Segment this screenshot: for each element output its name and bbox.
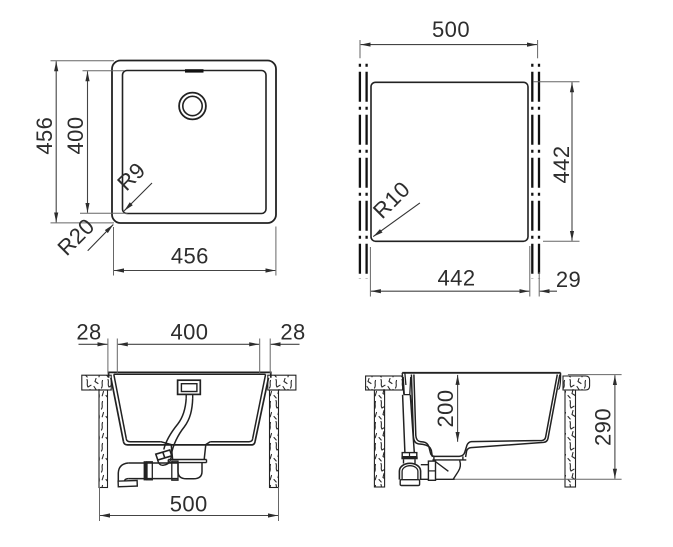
svg-text:400: 400 [170, 319, 208, 344]
svg-text:442: 442 [549, 146, 574, 184]
svg-text:28: 28 [280, 319, 305, 344]
svg-text:442: 442 [438, 265, 476, 290]
svg-text:28: 28 [76, 319, 101, 344]
svg-text:500: 500 [170, 491, 208, 516]
svg-text:456: 456 [32, 117, 57, 155]
svg-text:290: 290 [590, 408, 615, 446]
svg-text:456: 456 [171, 243, 209, 268]
svg-text:200: 200 [433, 390, 458, 428]
svg-text:400: 400 [63, 117, 88, 155]
svg-text:29: 29 [556, 267, 581, 292]
svg-text:500: 500 [432, 17, 470, 42]
